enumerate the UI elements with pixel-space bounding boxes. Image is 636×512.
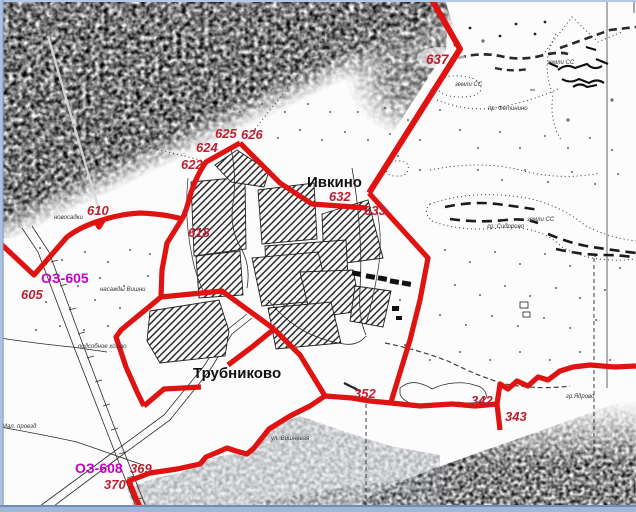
svg-text:633: 633 bbox=[364, 203, 386, 218]
svg-text:новосадки: новосадки bbox=[54, 215, 83, 221]
svg-text:626: 626 bbox=[241, 127, 263, 142]
svg-text:подсобное хоз-во: подсобное хоз-во bbox=[78, 344, 127, 350]
svg-text:Трубниково: Трубниково bbox=[193, 365, 281, 382]
svg-text:земли СС: земли СС bbox=[526, 217, 555, 223]
svg-text:гр. Сидорово: гр. Сидорово bbox=[487, 224, 525, 230]
svg-text:343: 343 bbox=[505, 409, 527, 424]
svg-text:земли СС: земли СС bbox=[546, 60, 575, 66]
svg-text:Мал. проезд: Мал. проезд bbox=[2, 424, 37, 430]
svg-text:352: 352 bbox=[354, 386, 376, 401]
svg-text:610: 610 bbox=[87, 203, 109, 218]
svg-text:632: 632 bbox=[329, 189, 351, 204]
svg-text:622: 622 bbox=[181, 157, 203, 172]
svg-text:пр. Фетинино: пр. Фетинино bbox=[488, 106, 528, 112]
svg-text:637: 637 bbox=[426, 52, 450, 67]
svg-text:605: 605 bbox=[21, 287, 43, 302]
svg-text:370: 370 bbox=[104, 477, 126, 492]
svg-text:Ивкино: Ивкино bbox=[307, 174, 362, 191]
svg-text:618: 618 bbox=[188, 225, 210, 240]
svg-text:625: 625 bbox=[215, 126, 237, 141]
svg-text:земли СС: земли СС bbox=[454, 82, 483, 88]
svg-text:342: 342 bbox=[471, 393, 493, 408]
svg-text:гр.Ядрово: гр.Ядрово bbox=[566, 394, 595, 400]
svg-text:369: 369 bbox=[130, 461, 152, 476]
svg-text:ОЗ-608: ОЗ-608 bbox=[75, 460, 123, 476]
svg-text:ОЗ-605: ОЗ-605 bbox=[41, 270, 89, 286]
svg-text:насажды Вишни: насажды Вишни bbox=[100, 287, 146, 293]
svg-text:624: 624 bbox=[196, 140, 218, 155]
svg-text:ул. Вишневая: ул. Вишневая bbox=[270, 436, 310, 442]
